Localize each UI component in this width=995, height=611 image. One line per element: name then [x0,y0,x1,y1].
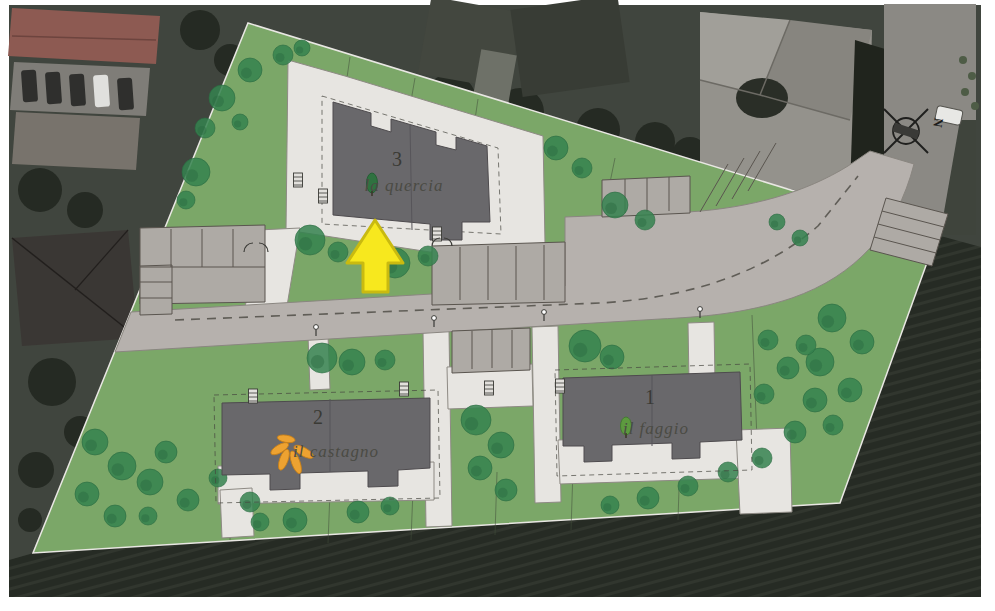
building-3-name: la quercia [365,176,444,195]
aerial-red-roof-building [8,8,160,64]
parking-mid [452,328,530,373]
aerial-dark-house [12,230,138,346]
building-1-number: 1 [645,386,655,408]
building-1-name: il faggio [623,419,689,438]
patio-building-1 [736,428,792,514]
building-2-name: il castagno [293,442,379,461]
parking-front-3 [432,242,565,305]
building-3-number: 3 [392,148,402,170]
building-2-number: 2 [313,406,323,428]
site-plan-image: 3 la quercia 2 il castagno 1 [0,0,995,611]
parking-left-column [140,265,172,315]
